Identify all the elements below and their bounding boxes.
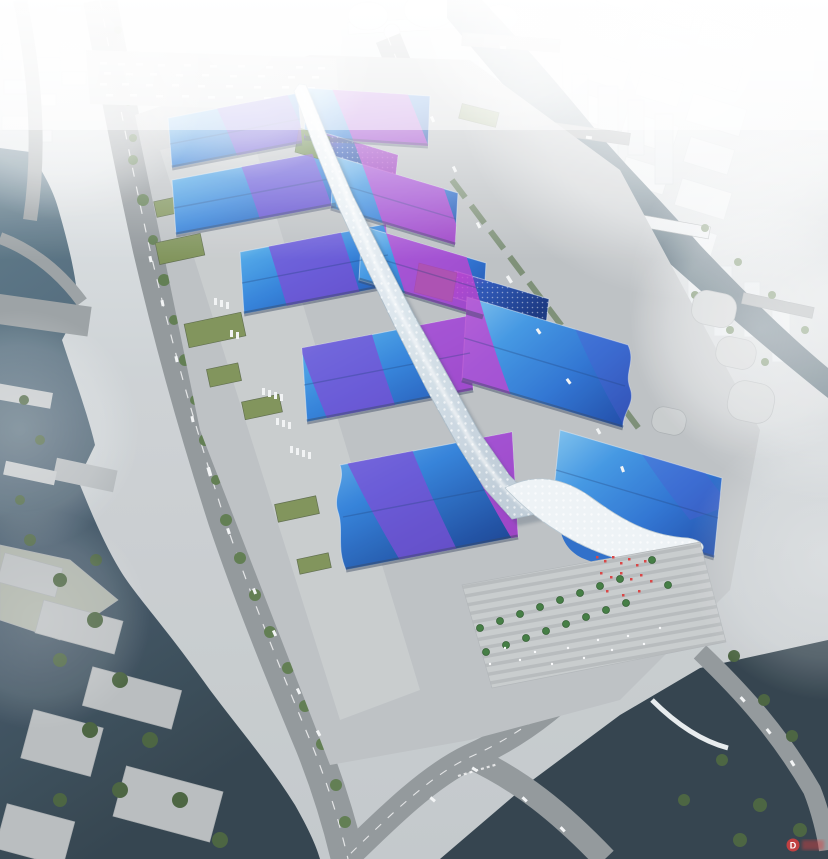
- watermark-text-blur: [802, 840, 824, 850]
- fog-overlays: [0, 0, 828, 859]
- aerial-rendering: D: [0, 0, 828, 859]
- watermark: D: [787, 839, 825, 852]
- watermark-logo-letter: D: [790, 841, 797, 851]
- scene-svg: D: [0, 0, 828, 859]
